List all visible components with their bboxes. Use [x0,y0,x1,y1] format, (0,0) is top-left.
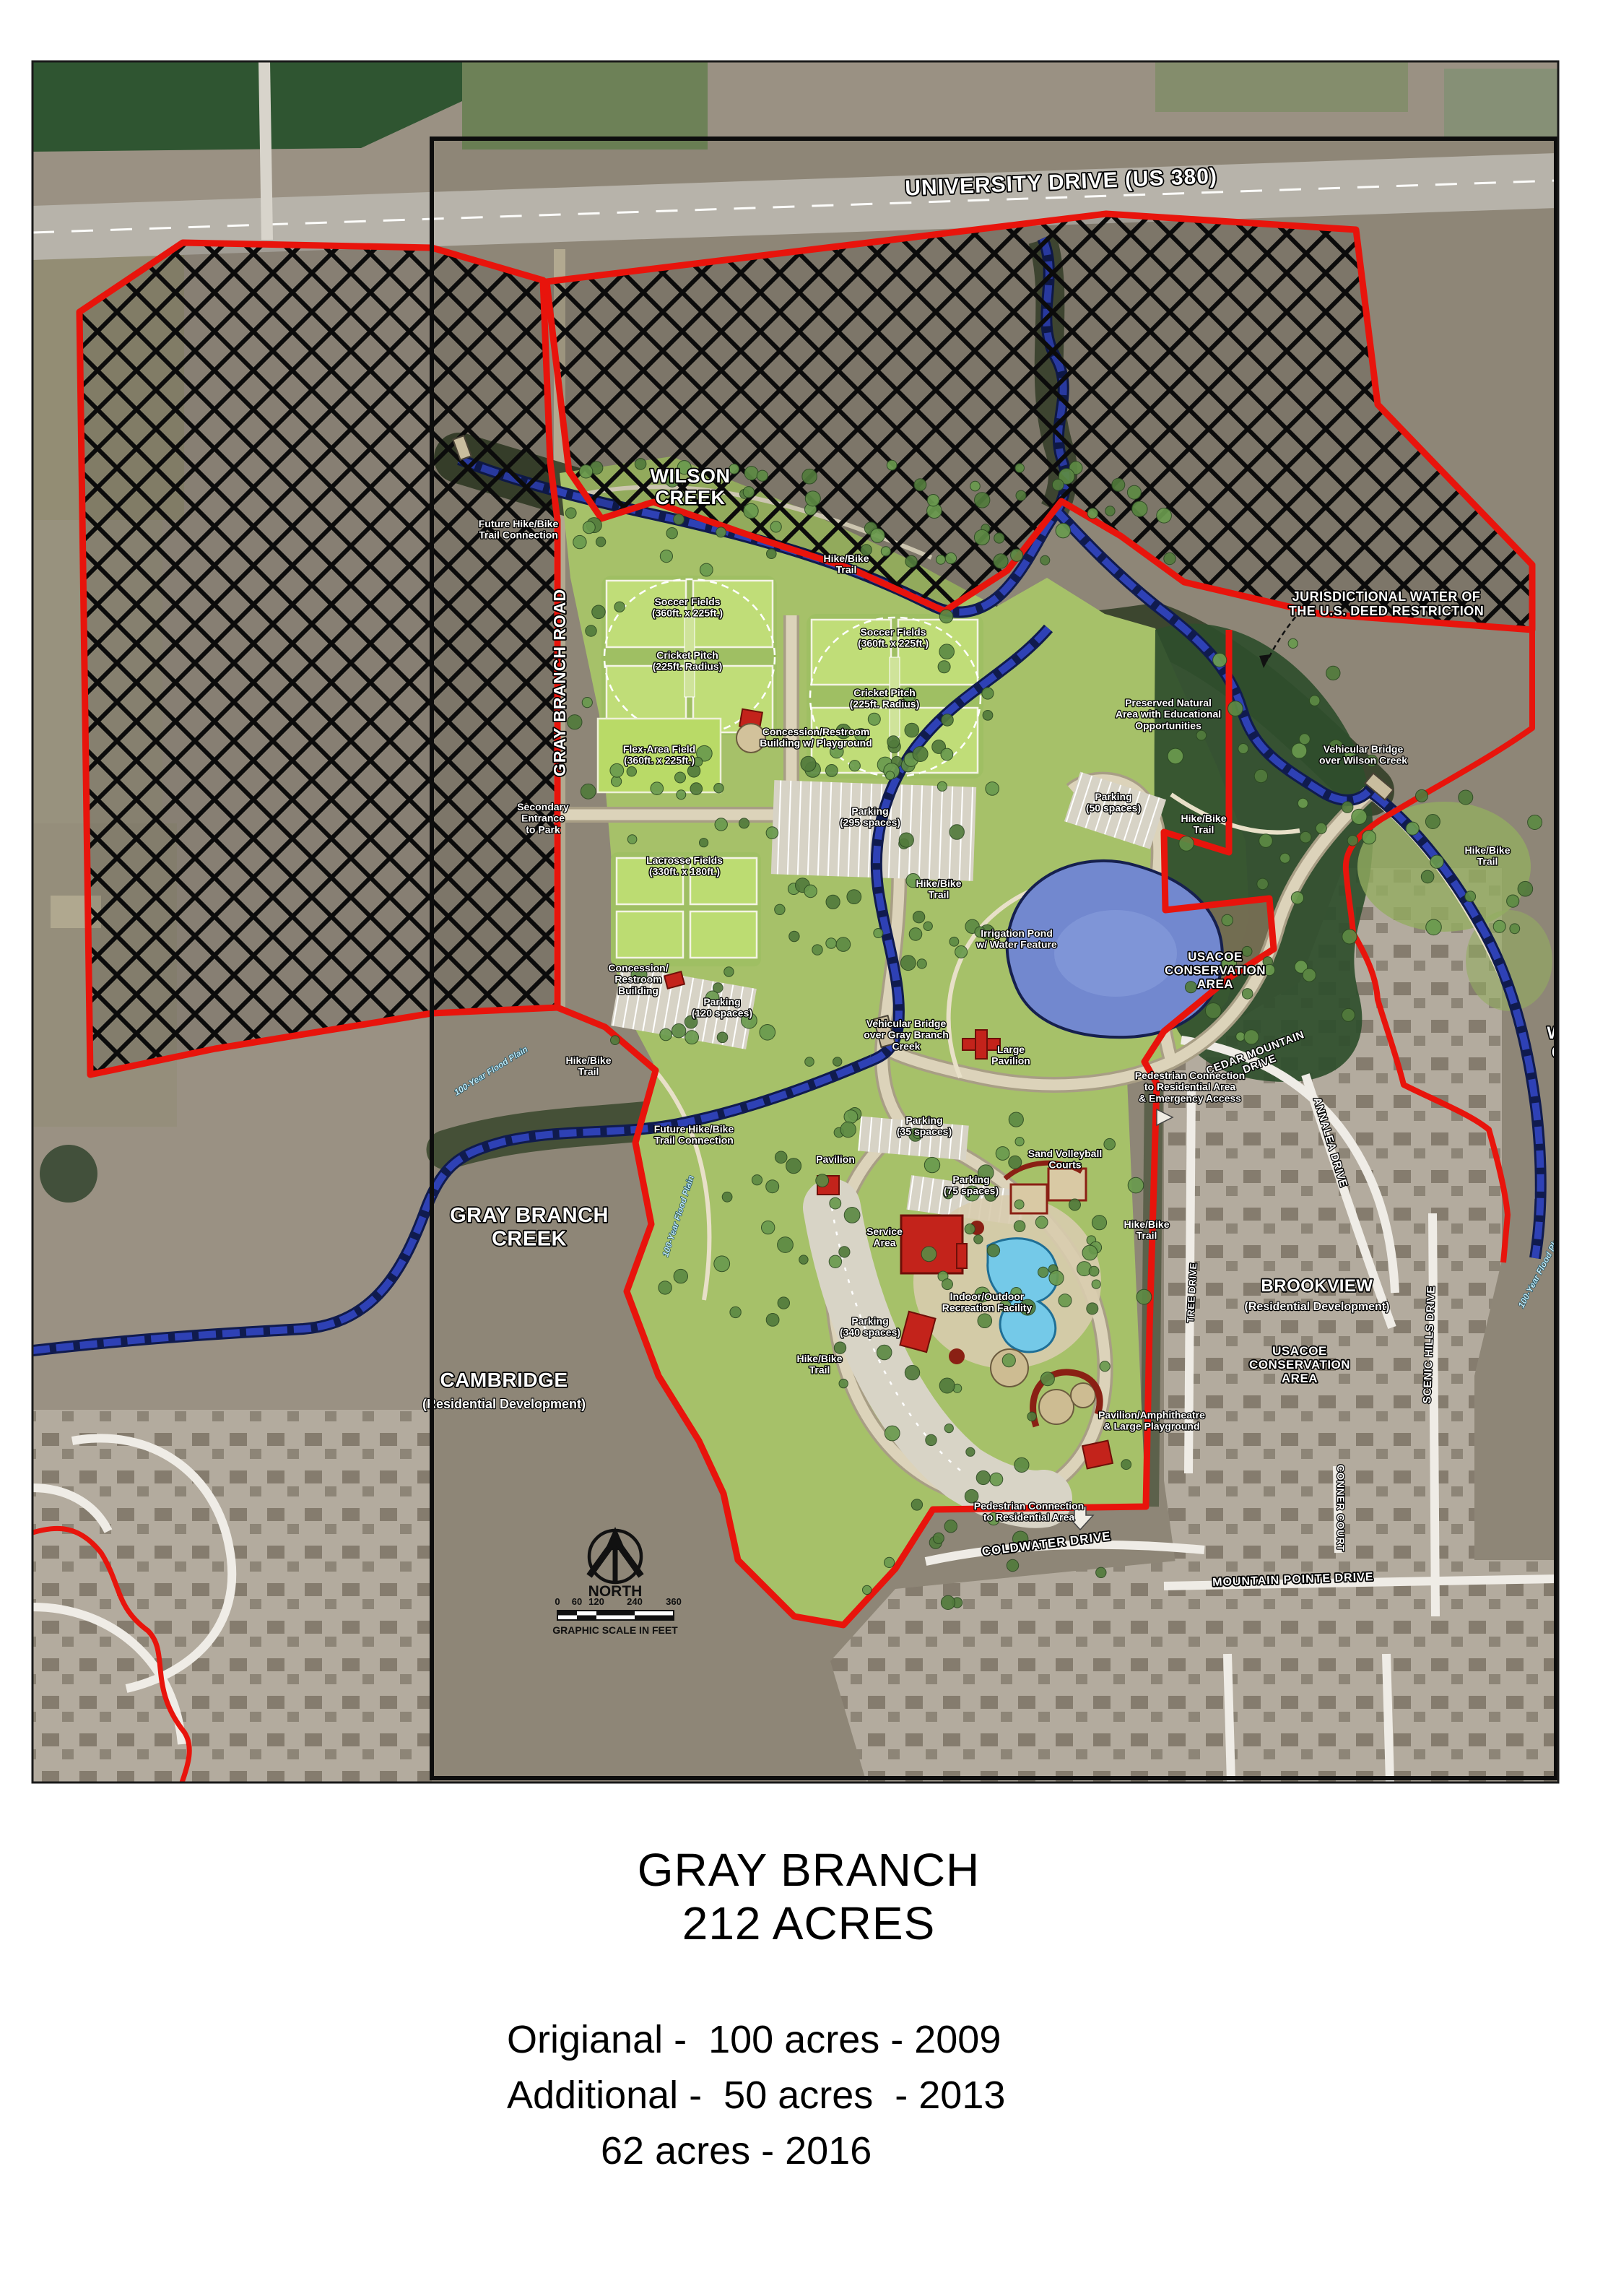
label-jurisdictional-water: JURISDICTIONAL WATER OFTHE U.S. DEED RES… [1289,589,1485,618]
label-indoor-outdoor: Indoor/OutdoorRecreation Facility [942,1291,1033,1314]
label-irrigation-pond: Irrigation Pondw/ Water Feature [975,927,1057,950]
scale-tick-60: 60 [572,1596,582,1607]
plan-title: GRAY BRANCH [404,1843,1213,1897]
label-ped-connection-e: Pedestrian Connectionto Residential Area… [1135,1070,1245,1104]
scale-tick-240: 240 [627,1596,643,1607]
history-line-2016: 62 acres - 2016 [507,2123,1213,2179]
scale-tick-0: 0 [555,1596,560,1607]
pond-highlight [1054,910,1177,997]
residential-south-area [830,1560,1556,1782]
plan-document-page: UNIVERSITY DRIVE (US 380)GRAY BRANCH ROA… [0,0,1621,2296]
scale-tick-360: 360 [666,1596,682,1607]
road-gray-branch-road: GRAY BRANCH ROAD [550,589,569,776]
title-block: GRAY BRANCH 212 ACRES Origianal - 100 ac… [404,1843,1213,2178]
label-concession-playground: Concession/RestroomBuilding w/ Playgroun… [760,726,872,749]
field-patch [462,61,708,150]
road-conner-court: CONNER COURT [1335,1465,1347,1551]
area-brookview: BROOKVIEW [1261,1276,1373,1296]
creek-wilson-label: WILSONCREEK [651,465,731,508]
field-patch [1444,69,1558,137]
label-flex-field: Flex-Area Field(360ft. x 225ft.) [623,743,695,766]
history-line-original: Origianal - 100 acres - 2009 [507,2012,1213,2068]
label-soccer-1: Soccer Fields(360ft. x 225ft.) [652,596,723,619]
label-future-trail-nw: Future Hike/BikeTrail Connection [479,518,559,541]
label-cricket-1: Cricket Pitch(225ft. Radius) [653,649,722,672]
plan-acreage: 212 ACRES [404,1897,1213,1950]
scale-bar [557,1611,674,1620]
area-brookview-sub: (Residential Development) [1245,1301,1390,1313]
label-future-trail-s: Future Hike/BikeTrail Connection [654,1123,734,1146]
area-cambridge: CAMBRIDGE [440,1369,568,1391]
small-pond [40,1145,97,1203]
history-line-additional: Additional - 50 acres - 2013 [507,2068,1213,2123]
label-ped-connection-s: Pedestrian Connectionto Residential Area [974,1500,1084,1523]
scale-tick-120: 120 [588,1596,604,1607]
label-lacrosse: Lacrosse Fields(330ft. x 180ft.) [646,854,723,878]
side-road [264,61,267,240]
acreage-history: Origianal - 100 acres - 2009 Additional … [404,2012,1213,2178]
scale-caption: GRAPHIC SCALE IN FEET [552,1624,678,1636]
label-pavilion-amphitheatre: Pavilion/Amphitheatre& Large Playground [1098,1409,1205,1432]
label-soccer-2: Soccer Fields(360ft. x 225ft.) [858,626,929,649]
label-pavilion-sw: Pavilion [816,1153,855,1165]
label-cricket-2: Cricket Pitch(225ft. Radius) [850,687,919,710]
label-veh-bridge-wilson: Vehicular Bridgeover Wilson Creek [1319,743,1407,766]
map-canvas: UNIVERSITY DRIVE (US 380)GRAY BRANCH ROA… [32,61,1619,1782]
field-patch [1155,61,1408,112]
area-cambridge-sub: (Residential Development) [422,1397,586,1411]
label-large-pavilion: LargePavilion [991,1044,1030,1067]
